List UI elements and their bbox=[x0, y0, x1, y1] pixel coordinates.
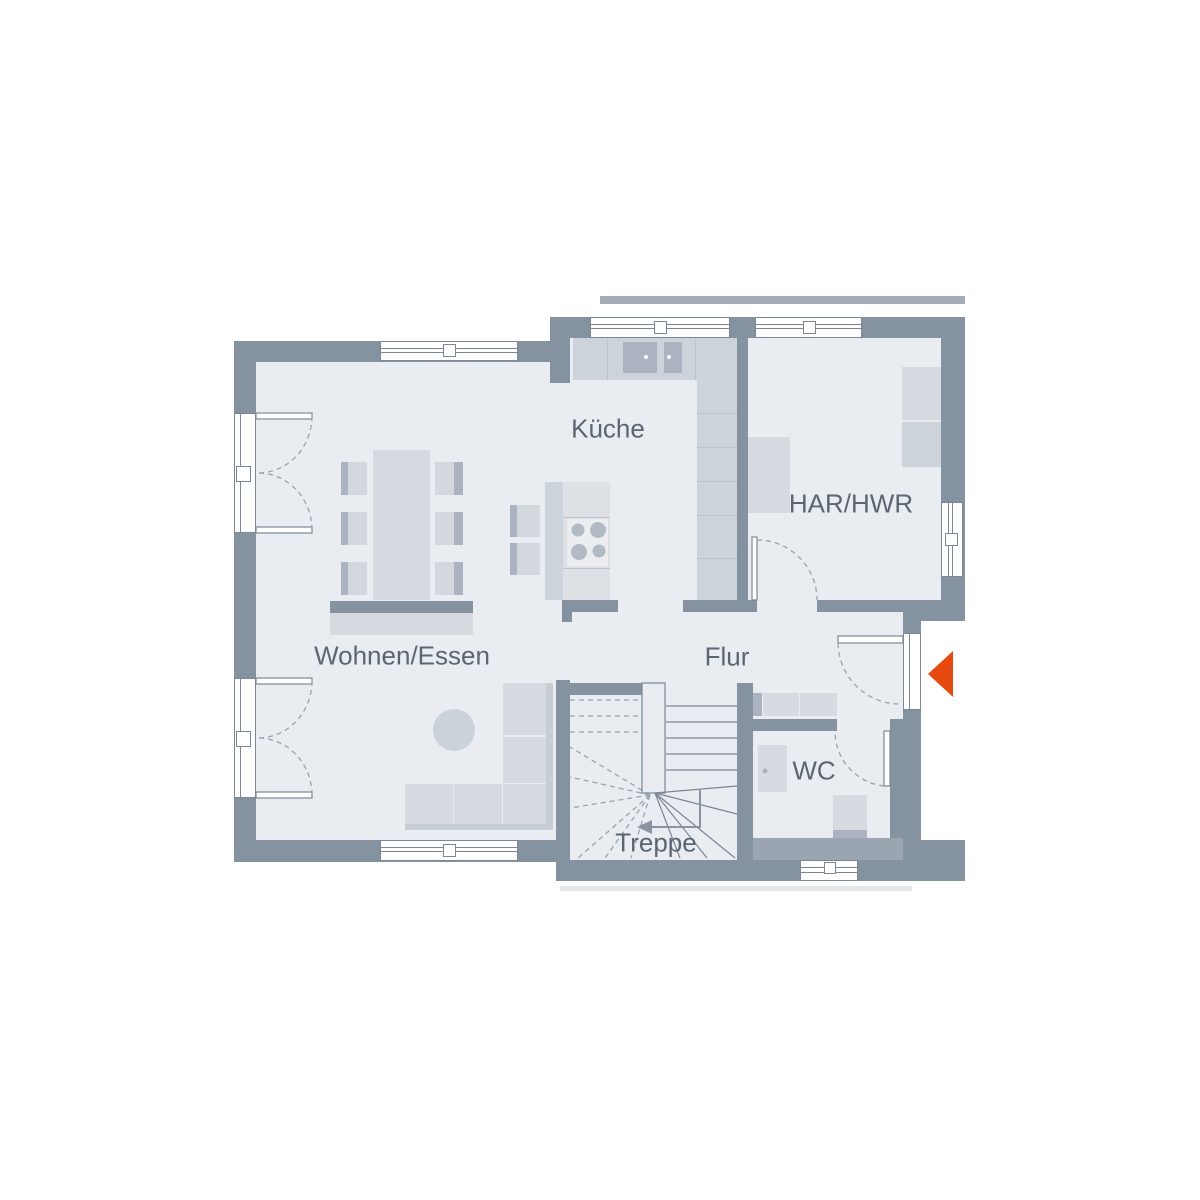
wall-right-lower bbox=[903, 710, 921, 840]
sofa-section bbox=[454, 784, 502, 824]
window-handle bbox=[654, 321, 667, 334]
floor-plan: Küche HAR/HWR Wohnen/Essen Flur WC Trepp… bbox=[0, 0, 1200, 1200]
sideboard-back bbox=[330, 601, 473, 613]
kitchen-island-strip bbox=[545, 482, 563, 600]
door-handle bbox=[236, 466, 251, 482]
wc-toilet bbox=[833, 795, 867, 830]
kitchen-sink bbox=[664, 342, 682, 373]
sofa-backrest bbox=[405, 824, 553, 830]
bench-armrest bbox=[753, 693, 762, 716]
counter-divider bbox=[695, 338, 696, 380]
window-right-utility bbox=[941, 502, 963, 577]
wall-hallway-top-b bbox=[817, 600, 903, 612]
dining-chair bbox=[435, 512, 463, 545]
window-handle bbox=[443, 844, 456, 857]
dining-table bbox=[373, 450, 430, 600]
entrance-arrow-icon bbox=[928, 651, 953, 697]
utility-cabinet bbox=[748, 437, 790, 513]
sofa-section bbox=[503, 737, 546, 783]
wc-washbasin bbox=[758, 745, 787, 792]
wall-kitchen-left-stub bbox=[550, 317, 570, 383]
wall-hallway-top-a bbox=[683, 600, 757, 612]
room-label-stairs: Treppe bbox=[615, 828, 696, 859]
hallway-bench bbox=[800, 693, 837, 716]
sofa-section bbox=[405, 784, 453, 824]
island-divider bbox=[563, 568, 610, 569]
french-door-frame-lower bbox=[234, 678, 256, 798]
wall-entrance-jamb-upper bbox=[903, 612, 921, 633]
room-label-hallway: Flur bbox=[705, 642, 750, 673]
bottom-shadow-band bbox=[560, 886, 912, 891]
counter-divider bbox=[697, 413, 737, 414]
window-handle bbox=[803, 321, 816, 334]
dining-chair bbox=[341, 512, 367, 545]
room-label-utility: HAR/HWR bbox=[789, 489, 913, 520]
wall-bottom-stairs bbox=[556, 860, 965, 881]
wall-island-knee bbox=[562, 600, 618, 612]
island-stool bbox=[510, 505, 540, 537]
coffee-table bbox=[433, 709, 475, 751]
wall-stairs-west bbox=[556, 680, 570, 861]
wall-wc-north bbox=[753, 719, 837, 731]
wall-island-knee-stub bbox=[562, 612, 572, 622]
wall-kitchen-utility bbox=[737, 338, 748, 612]
wall-wc-east bbox=[890, 719, 903, 840]
roof-edge-band bbox=[600, 296, 965, 304]
room-label-kitchen: Küche bbox=[571, 414, 645, 445]
wall-wc-south-plinth bbox=[753, 838, 903, 860]
sofa-backrest bbox=[546, 683, 553, 830]
island-stool bbox=[510, 543, 540, 575]
counter-divider bbox=[607, 338, 608, 380]
counter-divider bbox=[697, 481, 737, 482]
hallway-bench bbox=[763, 693, 799, 716]
window-handle bbox=[443, 344, 456, 357]
counter-divider bbox=[697, 515, 737, 516]
wall-stairs-top-stub bbox=[556, 683, 642, 695]
dryer bbox=[902, 422, 941, 467]
window-handle bbox=[945, 533, 958, 546]
cooktop bbox=[567, 519, 608, 566]
sofa-section bbox=[503, 683, 546, 735]
window-handle bbox=[824, 862, 836, 874]
wall-stairs-wc bbox=[737, 683, 753, 861]
window-wc bbox=[800, 860, 858, 881]
kitchen-sink bbox=[623, 342, 657, 373]
window-bottom-living bbox=[380, 840, 518, 861]
sideboard bbox=[330, 613, 473, 635]
dining-chair bbox=[341, 462, 367, 495]
entrance-door-frame bbox=[903, 633, 921, 710]
dining-chair bbox=[341, 562, 367, 595]
window-top-utility bbox=[755, 317, 862, 338]
counter-divider bbox=[697, 558, 737, 559]
room-label-living-dining: Wohnen/Essen bbox=[314, 641, 490, 672]
french-door-frame-upper bbox=[234, 413, 256, 533]
washer bbox=[902, 367, 941, 420]
counter-divider bbox=[697, 447, 737, 448]
window-top-living bbox=[380, 341, 518, 361]
window-top-kitchen bbox=[590, 317, 730, 338]
dining-chair bbox=[435, 462, 463, 495]
island-divider bbox=[563, 517, 610, 518]
room-label-wc: WC bbox=[792, 756, 835, 787]
door-handle bbox=[236, 731, 251, 747]
dining-chair bbox=[435, 562, 463, 595]
